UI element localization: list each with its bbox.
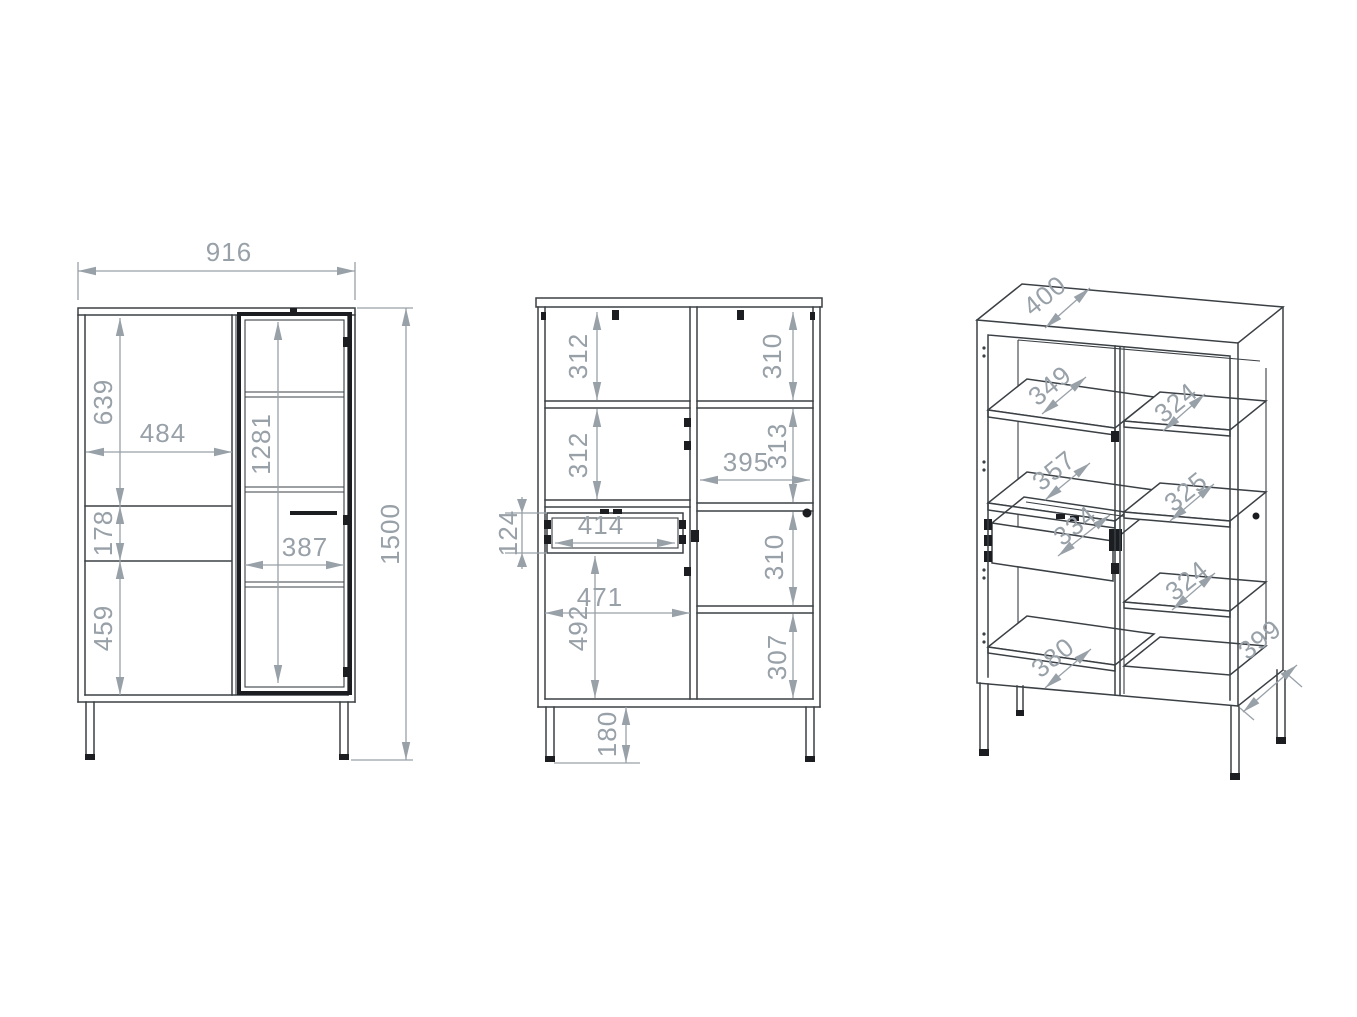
glass-door-frame [239,314,350,693]
perspective-view: 400 349 324 357 325 334 324 380 3 [977,269,1302,780]
hinge-mark [1111,563,1119,574]
leg-foot [1276,737,1286,744]
internal-dimensions: 312 312 124 414 471 492 180 310 3 [493,312,810,763]
hinge-mark [684,418,691,427]
hinge-mark [343,337,349,347]
dim-int-drawer-width: 414 [578,510,624,540]
technical-drawing-canvas: 916 1500 639 484 1281 178 459 387 [0,0,1357,1017]
dim-int-right-top: 310 [757,333,787,379]
dim-int-right-mid: 310 [759,534,789,580]
leg-foot [85,754,95,760]
internal-front-view: 312 312 124 414 471 492 180 310 3 [493,298,822,763]
dim-int-drawer-height: 124 [493,510,523,556]
fitting-mark [737,310,744,320]
drawer-slide-mark [679,535,686,544]
dim-front-width: 916 [206,237,252,267]
hinge-mark [1111,431,1119,442]
leg-foot [805,756,815,762]
technical-drawing-page: 916 1500 639 484 1281 178 459 387 [0,0,1357,1017]
cam-mark [1253,513,1260,520]
fitting-mark [541,312,546,320]
fitting-mark [612,310,619,320]
dim-int-left-top: 312 [563,333,593,379]
leg-foot [1016,710,1024,716]
dim-front-glass-width: 387 [282,532,328,562]
dim-front-door-width: 484 [140,418,186,448]
dim-int-leg-height: 180 [592,711,622,757]
fitting-mark [810,312,815,320]
leg-foot [339,754,349,760]
hinge-mark [343,667,349,677]
leg-foot [545,756,555,762]
leg-foot [1230,773,1240,780]
cam-mark [803,509,812,518]
hinge-mark [684,441,691,450]
dim-int-right-bottom: 307 [762,634,792,680]
dim-front-door-top: 639 [88,379,118,425]
perspective-structure [977,284,1286,780]
dim-int-left-bottom: 492 [563,605,593,651]
fitting-mark [290,308,297,315]
hinge-mark [343,515,349,525]
dim-front-drawer-front: 178 [88,510,118,556]
dim-front-door-bottom: 459 [88,605,118,651]
hinge-mark [691,530,699,542]
drawer-slide-mark [544,520,551,529]
hinge-mark [684,567,691,576]
shelf-pin-holes [982,346,985,643]
dim-int-right-width: 395 [723,447,769,477]
drawer-slide-mark [679,520,686,529]
dim-front-glass-height: 1281 [246,413,276,475]
dim-int-left-mid: 312 [563,432,593,478]
drawer-slide-mark [544,535,551,544]
dim-front-height: 1500 [375,503,405,565]
leg-foot [979,749,989,756]
front-elevation-view: 916 1500 639 484 1281 178 459 387 [78,237,413,760]
